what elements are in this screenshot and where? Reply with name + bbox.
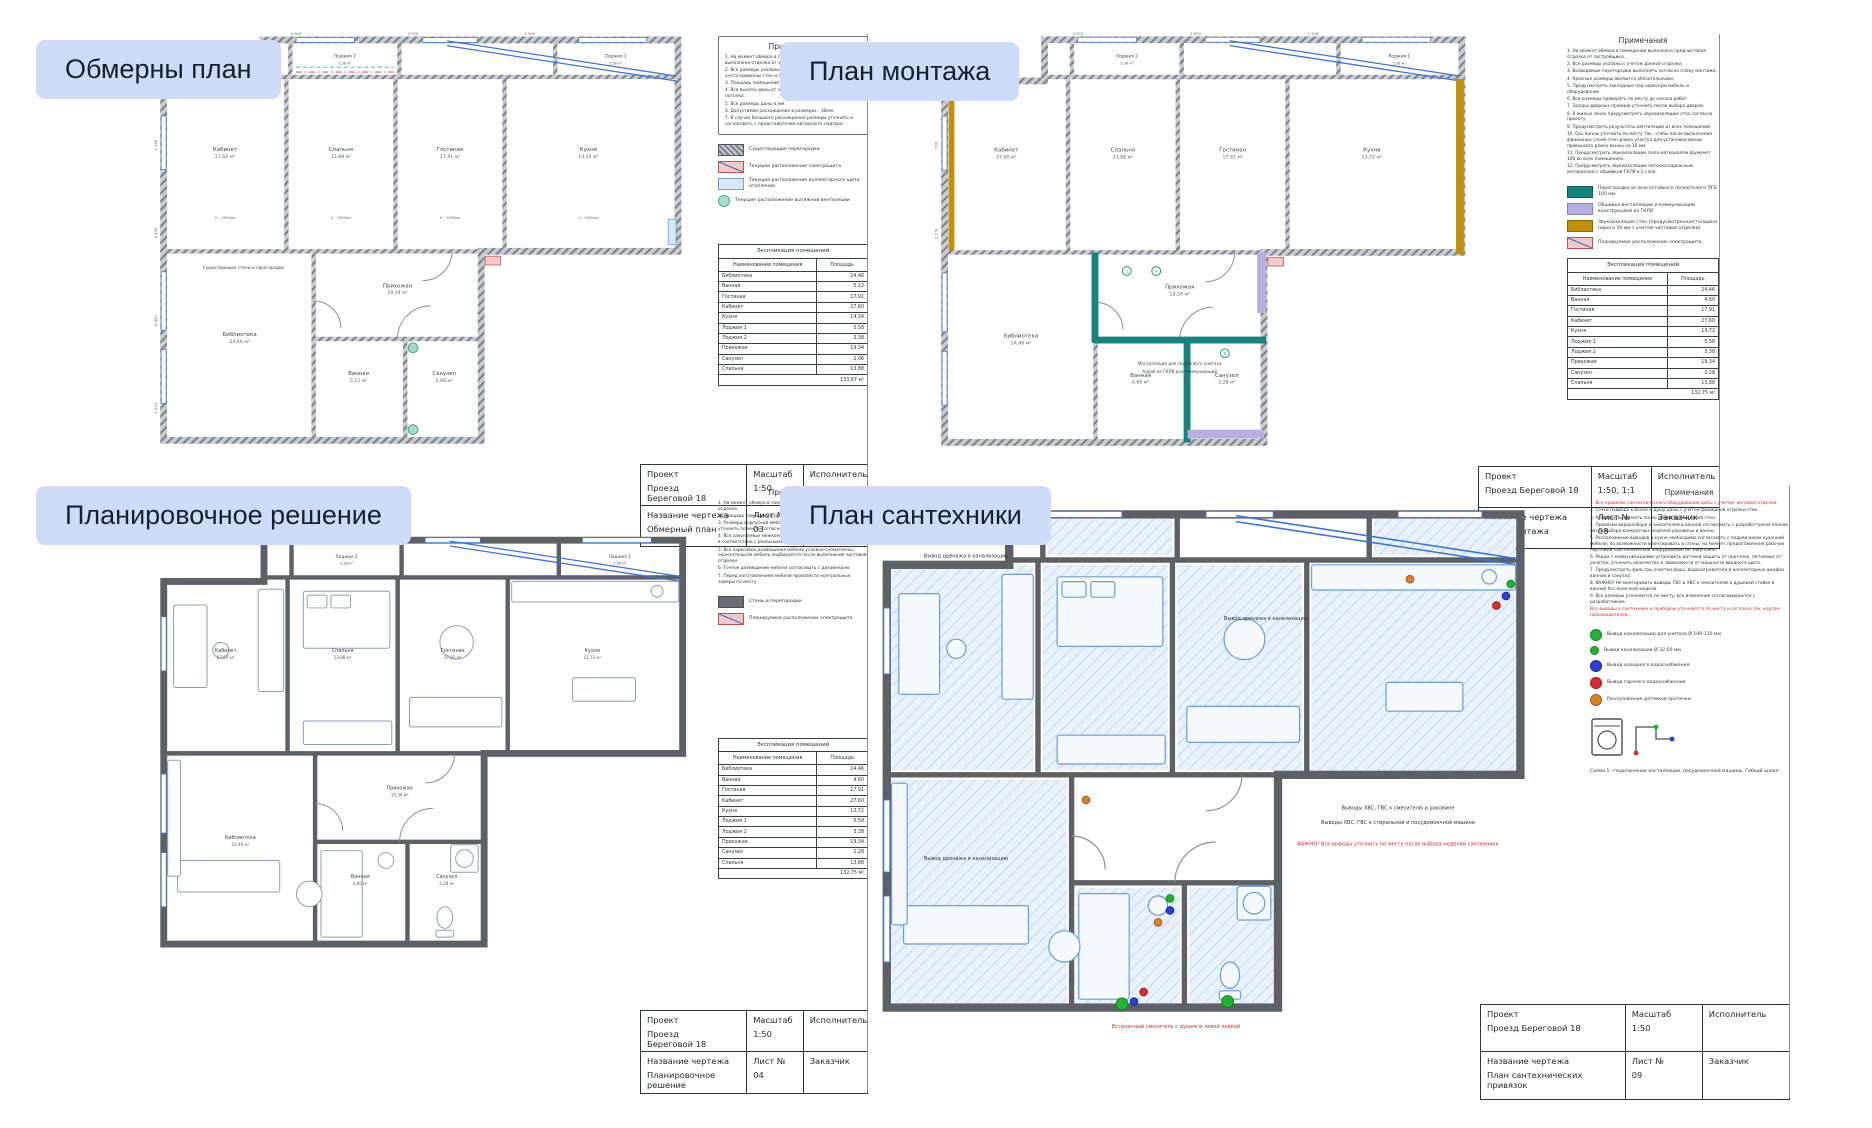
window bbox=[942, 351, 947, 405]
plan-annotation: Инсталляция для подвесного унитаза bbox=[1138, 361, 1221, 366]
room-name: Лоджия 1 bbox=[1388, 53, 1410, 59]
legend-swatch-solid bbox=[1567, 220, 1593, 232]
room-area: 24,46 м² bbox=[231, 842, 249, 847]
sheet-montage-plan: 246Кабинет27,60 м²Спальня13,88 м²Гостина… bbox=[870, 28, 1720, 549]
room-area-cell: 13,72 bbox=[1667, 327, 1718, 337]
room-name-cell: Прихожая bbox=[1568, 358, 1668, 368]
room-area: 3,38 м² bbox=[340, 562, 354, 566]
room-name-cell: Лоджия 2 bbox=[1568, 347, 1668, 357]
room-name: Спальня bbox=[332, 648, 354, 654]
sheet-label-measurement: Обмерны план bbox=[36, 40, 281, 99]
legend-label: Текущее расположение вытяжной вентиляции bbox=[735, 198, 850, 204]
room-name: Гостиная bbox=[437, 147, 464, 153]
door-arc bbox=[1206, 775, 1242, 811]
sewer-outlet bbox=[1222, 996, 1234, 1008]
title-block-label: Проект bbox=[647, 469, 740, 479]
plan-annotation: Вывод дренажа в канализацию bbox=[924, 554, 1008, 560]
room-area: 13,88 м² bbox=[331, 154, 351, 160]
dimension: 1 510 bbox=[154, 402, 158, 413]
furniture-round bbox=[947, 639, 966, 658]
legend-swatch-ehatch bbox=[1567, 237, 1593, 249]
cold-water-outlet bbox=[1502, 592, 1510, 600]
plan-annotation: Короб из ГКЛВ для коммуникаций bbox=[1142, 369, 1217, 374]
room-name: Лоджия 1 bbox=[605, 53, 627, 59]
height-note: H - 2985мм bbox=[331, 216, 352, 220]
note-line: 11. Предусмотреть звукоизоляцию пола мат… bbox=[1567, 151, 1719, 163]
room-name-cell: Гостиная bbox=[719, 785, 817, 795]
room-name: Гостиная bbox=[441, 648, 465, 654]
dimension: 1 226 bbox=[1308, 32, 1319, 36]
glazing-line bbox=[447, 41, 676, 76]
title-block-value: Проезд Береговой 18 bbox=[1487, 1023, 1619, 1033]
title-block-label: Лист № bbox=[753, 1056, 797, 1066]
col-room-name: Наименование помещения bbox=[1568, 272, 1668, 285]
title-block-label: Исполнитель bbox=[810, 469, 861, 479]
window bbox=[884, 896, 890, 962]
room-name-cell: Кухня bbox=[719, 806, 817, 816]
furniture bbox=[168, 760, 181, 876]
title-block-cell: ПроектПроезд Береговой 18 bbox=[641, 1011, 747, 1052]
table-row: Кабинет27,60 bbox=[719, 796, 868, 806]
legend-swatch-ehatch bbox=[718, 161, 744, 173]
note-line: 10. Ось ванны уточнить по месту так, что… bbox=[1567, 132, 1719, 149]
note-line: 5. Все зарисовки размещения мебели услов… bbox=[718, 548, 868, 565]
room-name: Санузел bbox=[432, 371, 456, 377]
legend-label: Текущее расположение коллекторного щита … bbox=[749, 178, 868, 190]
room-area-cell: 5,58 bbox=[1667, 337, 1718, 347]
table-title-row: Экспликация помещений bbox=[1568, 259, 1719, 272]
legend-item: Стены и перегородки bbox=[718, 596, 868, 608]
title-block-cell: Лист №09 bbox=[1626, 1052, 1703, 1099]
room-name-cell: Санузел bbox=[1568, 368, 1668, 378]
height-note: H - 2985мм bbox=[440, 216, 461, 220]
room-name: Библиотека bbox=[223, 332, 257, 338]
room-area: 3,38 м² bbox=[1120, 61, 1134, 65]
note-line: Все выводы к сантехнике и приборам уточн… bbox=[1590, 607, 1788, 619]
legend-swatch-solid bbox=[718, 178, 744, 190]
room-name-cell: Гостиная bbox=[1568, 306, 1668, 316]
col-area: Площадь bbox=[817, 752, 868, 765]
electro-panel bbox=[1268, 257, 1284, 266]
table-row: Спальня13,88 bbox=[719, 858, 868, 868]
table-header-row: Наименование помещенияПлощадь bbox=[1568, 272, 1719, 285]
room-name: Прихожая bbox=[1165, 285, 1194, 291]
room-area: 19,34 м² bbox=[391, 793, 409, 798]
dimension: 5 915 bbox=[291, 32, 302, 36]
room-area: 5,58 м² bbox=[613, 562, 627, 566]
room-area-cell: 13,88 bbox=[1667, 378, 1718, 388]
table-row: Лоджия 23,38 bbox=[719, 333, 868, 343]
title-block-cell: Исполнитель bbox=[1703, 1005, 1789, 1052]
title-block-label: Масштаб bbox=[753, 469, 797, 479]
room-name: Прихожая bbox=[386, 786, 412, 792]
note-line: 9. Все размеры уточняются по месту; все … bbox=[1590, 594, 1788, 606]
title-block-label: Название чертежа bbox=[1487, 1056, 1619, 1066]
svg-text:2: 2 bbox=[1126, 269, 1128, 273]
room-name: Лоджия 1 bbox=[609, 554, 632, 560]
room-name-cell: Лоджия 2 bbox=[719, 827, 817, 837]
room-name-cell: Библиотека bbox=[1568, 285, 1668, 295]
room-area: 4,60 м² bbox=[353, 881, 369, 886]
legend-item: Текущее расположение электрощита bbox=[718, 161, 868, 173]
room-name: Кухня bbox=[580, 147, 597, 153]
plan-annotation: Существующие стены и перегородки bbox=[203, 265, 284, 270]
plan-annotation: Выводы ХВС, ГВС к смесителю и раковине bbox=[1341, 806, 1454, 812]
title-block-label: Масштаб bbox=[753, 1015, 797, 1025]
glazing-line bbox=[1230, 41, 1460, 76]
sewer-outlet-small bbox=[1166, 895, 1174, 903]
legend: Вывод канализации для унитаза Ø 100-110 … bbox=[1590, 629, 1788, 706]
room-area-cell: 3,38 bbox=[1667, 347, 1718, 357]
furniture bbox=[1187, 706, 1300, 742]
title-block-value: 09 bbox=[1632, 1070, 1696, 1080]
furniture-round bbox=[456, 850, 474, 868]
gklv-box bbox=[1257, 252, 1266, 313]
title-block: ПроектПроезд Береговой 18Масштаб1:50Испо… bbox=[1480, 1004, 1790, 1100]
plan-annotation: Выводы ХВС, ГВС к стиральной и посудомое… bbox=[1321, 819, 1475, 826]
furniture bbox=[1079, 894, 1129, 1000]
room-name-cell: Кабинет bbox=[719, 302, 817, 312]
note-line: 2. Точки подвода к ванне и душу даны с у… bbox=[1590, 508, 1788, 514]
sheet-layout-plan: Кабинет27,60 м²Спальня13,88 м²Гостиная17… bbox=[150, 480, 868, 1096]
furniture-round bbox=[1049, 931, 1080, 962]
room-area: 5,12 м² bbox=[350, 378, 367, 384]
notes-panel: Примечания1. На момент обмера в помещени… bbox=[1567, 36, 1719, 177]
title-block-cell: Название чертежаПлан сантехнических прив… bbox=[1481, 1052, 1626, 1099]
legend-label: Звукоизоляция стен (предусмотренная толщ… bbox=[1598, 220, 1719, 232]
title-block-value: Планировочное решение bbox=[647, 1070, 740, 1090]
new-partition bbox=[1092, 252, 1099, 342]
furniture-round bbox=[1224, 619, 1265, 660]
room-area: 5,58 м² bbox=[609, 61, 623, 65]
legend: Существующие перегородкиТекущее располож… bbox=[718, 144, 868, 207]
table-row: Санузел2,06 bbox=[719, 354, 868, 364]
table-row: Спальня13,88 bbox=[719, 365, 868, 375]
legend-swatch-hatch bbox=[718, 144, 744, 156]
room-area: 27,60 м² bbox=[215, 154, 235, 160]
cold-water-outlet bbox=[1130, 998, 1138, 1006]
legend-item: Вывод холодного водоснабжения bbox=[1590, 660, 1788, 672]
total-area-cell: 133,67 м² bbox=[719, 375, 868, 385]
sheet-plumbing-plan: Вывод дренажа в канализациюВывод дренажа… bbox=[868, 480, 1790, 1102]
note-line: 4. Привязки водоразбора к смесителям в в… bbox=[1590, 523, 1788, 535]
legend-label: Вывод канализации Ø 32-50 мм bbox=[1604, 648, 1681, 654]
door-arc bbox=[423, 251, 452, 280]
furniture bbox=[321, 851, 362, 937]
room-area-cell: 19,34 bbox=[817, 344, 868, 354]
room-name: Кухня bbox=[1363, 147, 1380, 153]
room-area-cell: 17,91 bbox=[1667, 306, 1718, 316]
room-area-cell: 4,60 bbox=[817, 775, 868, 785]
sewer-outlet bbox=[1116, 998, 1128, 1010]
room-name: Кухня bbox=[585, 648, 600, 654]
room-name: Гостиная bbox=[1219, 147, 1246, 153]
legend-label: Обшивка инсталляции и коммуникаций конст… bbox=[1598, 203, 1719, 215]
room-name: Лоджия 2 bbox=[1116, 53, 1138, 59]
legend-item: Звукоизоляция стен (предусмотренная толщ… bbox=[1567, 220, 1719, 232]
room-area: 13,88 м² bbox=[1113, 154, 1133, 160]
room-name: Ванная bbox=[348, 371, 369, 377]
legend-label: Планируемое расположение электрощита bbox=[749, 616, 853, 622]
note-line: 8. ВАЖНО! Не монтировать выводы ГВС и ХВ… bbox=[1590, 581, 1788, 593]
note-line: 1. На момент обмера в помещении выполнен… bbox=[1567, 49, 1719, 61]
room-area: 24,46 м² bbox=[230, 339, 250, 345]
legend-label: Стены и перегородки bbox=[749, 599, 802, 605]
window bbox=[296, 38, 354, 43]
table-row: Лоджия 23,38 bbox=[1568, 347, 1719, 357]
room-name: Лоджия 2 bbox=[334, 53, 356, 59]
table-title-row: Экспликация помещений bbox=[719, 738, 868, 751]
room-name-cell: Прихожая bbox=[719, 837, 817, 847]
window bbox=[1078, 37, 1137, 42]
legend-label: Планируемое расположение электрощита bbox=[1598, 240, 1702, 246]
door-arc bbox=[1175, 842, 1216, 883]
legend-swatch-circle bbox=[1590, 694, 1602, 706]
appliance-icons bbox=[1590, 717, 1788, 757]
room-name: Ванная bbox=[351, 874, 370, 880]
room-area-cell: 17,91 bbox=[817, 292, 868, 302]
table-row: Лоджия 15,58 bbox=[1568, 337, 1719, 347]
title-block-label: Заказчик bbox=[1709, 1056, 1783, 1066]
door-arc bbox=[315, 804, 343, 832]
room-area-cell: 13,88 bbox=[817, 365, 868, 375]
legend-item: Планируемое расположение электрощита bbox=[718, 613, 868, 625]
furniture bbox=[178, 861, 280, 892]
table-title: Экспликация помещений bbox=[1568, 259, 1719, 272]
legend-item: Вывод канализации для унитаза Ø 100-110 … bbox=[1590, 629, 1788, 641]
window bbox=[942, 116, 947, 170]
table-row: Ванная4,60 bbox=[719, 775, 868, 785]
table-total-row: 132,75 м² bbox=[1568, 389, 1719, 399]
vent-circle bbox=[408, 343, 418, 353]
hot-water-outlet bbox=[1140, 988, 1148, 996]
window bbox=[1050, 511, 1122, 517]
room-area-cell: 5,58 bbox=[817, 323, 868, 333]
hot-water-outlet bbox=[1493, 602, 1501, 610]
furniture bbox=[1002, 574, 1033, 699]
window bbox=[942, 273, 947, 332]
room-name: Санузел bbox=[436, 874, 457, 880]
room-area: 13,88 м² bbox=[334, 655, 352, 660]
room-area-cell: 27,60 bbox=[817, 796, 868, 806]
dimension: 700 bbox=[935, 141, 939, 149]
furniture bbox=[307, 595, 327, 608]
title-block-cell: Масштаб1:50 bbox=[747, 1011, 804, 1052]
room-area: 24,46 м² bbox=[1011, 340, 1031, 346]
dimension: 6 450 bbox=[154, 315, 158, 326]
room-area: 13,72 м² bbox=[583, 655, 601, 660]
note-line: 4. Красные размеры являются обязательным… bbox=[1567, 77, 1719, 83]
legend-label: Расположение датчиков протечки bbox=[1607, 697, 1691, 703]
notes-panel: Примечания1. Все привязки сантехническог… bbox=[1590, 488, 1788, 620]
room-name: Кабинет bbox=[213, 147, 238, 153]
table-header-row: Наименование помещенияПлощадь bbox=[719, 752, 868, 765]
door-arc bbox=[314, 301, 341, 328]
legend-label: Вывод холодного водоснабжения bbox=[1607, 663, 1689, 669]
furniture bbox=[904, 906, 1029, 944]
room-name-cell: Кухня bbox=[719, 313, 817, 323]
table-row: Библиотека24,46 bbox=[719, 271, 868, 281]
furniture bbox=[174, 605, 207, 688]
plan-annotation: Вывод дренажа в канализацию bbox=[924, 856, 1008, 862]
room-area: 14,34 м² bbox=[578, 154, 598, 160]
furniture bbox=[1091, 582, 1115, 598]
legend-item: Перегородка из влагостойкого полнотелого… bbox=[1567, 186, 1719, 198]
room-table: Экспликация помещенийНаименование помеще… bbox=[718, 244, 868, 386]
room-area-cell: 14,34 bbox=[817, 313, 868, 323]
room-area-cell: 3,38 bbox=[817, 333, 868, 343]
table-row: Кабинет27,60 bbox=[719, 302, 868, 312]
furniture bbox=[899, 594, 940, 695]
furniture bbox=[409, 697, 501, 726]
room-area-cell: 5,12 bbox=[817, 282, 868, 292]
outer-walls bbox=[945, 40, 1462, 443]
room-name: Спальня bbox=[329, 147, 353, 153]
furniture bbox=[892, 783, 908, 925]
col-room-name: Наименование помещения bbox=[719, 752, 817, 765]
room-area: 17,91 м² bbox=[1222, 154, 1242, 160]
room-area-cell: 13,88 bbox=[817, 858, 868, 868]
legend-swatch-circle bbox=[1590, 677, 1602, 689]
drawing-board: Кабинет27,60 м²Спальня13,88 м²Гостиная17… bbox=[0, 0, 1872, 1128]
plan-annotation: Встроенный смеситель с душем и левой лей… bbox=[1112, 1023, 1240, 1030]
note-line: 7. В случае большого расхождения размеры… bbox=[725, 116, 861, 128]
furniture-round bbox=[1482, 570, 1496, 584]
piping-scheme-icon bbox=[1632, 717, 1676, 757]
note-line: 6. Допустимое расхождение в размерах - 3… bbox=[725, 109, 861, 115]
note-line: 3. Разводку выполнять после штукатурных … bbox=[1590, 516, 1788, 522]
table-row: Спальня13,88 bbox=[1568, 378, 1719, 388]
dimension: 2 970 bbox=[408, 32, 419, 36]
room-name-cell: Лоджия 2 bbox=[719, 333, 817, 343]
title-block-cell: Исполнитель bbox=[804, 1011, 867, 1052]
room-area-cell: 24,46 bbox=[817, 271, 868, 281]
collector-panel bbox=[668, 219, 676, 244]
sound-insulation bbox=[1456, 79, 1464, 254]
table-row: Библиотека24,46 bbox=[719, 765, 868, 775]
window bbox=[1362, 37, 1431, 42]
table-row: Лоджия 23,38 bbox=[719, 827, 868, 837]
sheet-label-plumbing: План сантехники bbox=[780, 486, 1051, 545]
title-block-label: Лист № bbox=[1632, 1056, 1696, 1066]
door-arc bbox=[1095, 302, 1122, 329]
legend-item: Обшивка инсталляции и коммуникаций конст… bbox=[1567, 203, 1719, 215]
furniture-round bbox=[1148, 896, 1167, 915]
notes-body: 1. На момент обмера в помещении выполнен… bbox=[1567, 49, 1719, 176]
note-line: 6. Рядом с коммуникациями установить дат… bbox=[1590, 555, 1788, 567]
room-area: 2,28 м² bbox=[439, 881, 455, 886]
table-row: Гостиная17,91 bbox=[719, 785, 868, 795]
room-name-cell: Кухня bbox=[1568, 327, 1668, 337]
room-name-cell: Библиотека bbox=[719, 271, 817, 281]
legend-label: Существующие перегородки bbox=[749, 147, 820, 153]
door-arc bbox=[1072, 836, 1106, 870]
gklv-box bbox=[1188, 430, 1264, 439]
room-name-cell: Спальня bbox=[719, 858, 817, 868]
furniture bbox=[303, 721, 391, 745]
total-area-cell: 132,75 м² bbox=[719, 868, 868, 878]
table-row: Лоджия 15,58 bbox=[719, 323, 868, 333]
furniture bbox=[1386, 682, 1463, 711]
room-name-cell: Кабинет bbox=[719, 796, 817, 806]
room-name-cell: Ванная bbox=[719, 282, 817, 292]
window bbox=[582, 538, 651, 543]
title-block-label: Исполнитель bbox=[1709, 1009, 1783, 1019]
window bbox=[161, 774, 166, 833]
notes-title: Примечания bbox=[1567, 36, 1719, 45]
title-block-label: Заказчик bbox=[810, 1056, 861, 1066]
title-block-cell: Заказчик bbox=[1703, 1052, 1789, 1099]
col-room-name: Наименование помещения bbox=[719, 258, 817, 271]
legend: Перегородка из влагостойкого полнотелого… bbox=[1567, 186, 1719, 249]
outer-walls bbox=[164, 40, 678, 440]
room-name: Библиотека bbox=[225, 835, 256, 841]
sewer-outlet-small bbox=[1507, 580, 1515, 588]
sheet-label-layout: Планировочное решение bbox=[36, 486, 411, 545]
table-title-row: Экспликация помещений bbox=[719, 245, 868, 258]
room-area: 17,91 м² bbox=[444, 655, 462, 660]
room-name-cell: Ванная bbox=[1568, 295, 1668, 305]
new-partition bbox=[1094, 337, 1266, 344]
table-row: Кухня13,72 bbox=[1568, 327, 1719, 337]
title-block-label: Проект bbox=[1487, 1009, 1619, 1019]
table-row: Санузел2,28 bbox=[1568, 368, 1719, 378]
leak-sensor bbox=[1406, 575, 1414, 583]
dimension: 1 226 bbox=[154, 139, 158, 150]
side-panel: Примечания1. Все привязки сантехническог… bbox=[1590, 488, 1788, 775]
window bbox=[884, 800, 890, 872]
note-line: 8. В жилых зонах предусмотреть звукоизол… bbox=[1567, 112, 1719, 124]
table-row: Ванная4,60 bbox=[1568, 295, 1719, 305]
room-name-cell: Лоджия 1 bbox=[719, 323, 817, 333]
room-name-cell: Санузел bbox=[719, 354, 817, 364]
note-line: 5. Предусмотреть закладные под навесную … bbox=[1567, 84, 1719, 96]
room-name-cell: Лоджия 1 bbox=[719, 817, 817, 827]
leak-sensor bbox=[1082, 796, 1090, 804]
note-line: 5. Расположение выводов в кухне необходи… bbox=[1590, 536, 1788, 553]
window bbox=[161, 350, 166, 404]
notes-body: 1. Все привязки сантехнического оборудов… bbox=[1590, 501, 1788, 619]
window bbox=[579, 38, 647, 43]
note-line: 6. Все размеры проверять по месту до нач… bbox=[1567, 97, 1719, 103]
total-area-cell: 132,75 м² bbox=[1568, 389, 1719, 399]
legend-swatch-ehatch bbox=[718, 613, 744, 625]
room-area-cell: 19,34 bbox=[817, 837, 868, 847]
legend-swatch-solid bbox=[1567, 186, 1593, 198]
room-area: 19,34 м² bbox=[1170, 291, 1190, 297]
window bbox=[161, 272, 166, 330]
room-name: Кабинет bbox=[215, 648, 237, 654]
room-name-cell: Спальня bbox=[719, 365, 817, 375]
room-name: Лоджия 2 bbox=[335, 554, 358, 560]
dimension: 2 170 bbox=[935, 228, 939, 239]
col-area: Площадь bbox=[817, 258, 868, 271]
furniture-round bbox=[378, 853, 394, 869]
sheet-frame-line bbox=[1789, 486, 1790, 1098]
legend-label: Текущее расположение электрощита bbox=[749, 164, 841, 170]
room-area-cell: 27,60 bbox=[1667, 316, 1718, 326]
door-arc bbox=[1180, 307, 1213, 340]
window bbox=[161, 116, 166, 170]
furniture bbox=[258, 589, 284, 691]
table-row: Кабинет27,60 bbox=[1568, 316, 1719, 326]
dimension: 2 970 bbox=[1190, 32, 1201, 36]
room-name-cell: Прихожая bbox=[719, 344, 817, 354]
dimension: 2 435 bbox=[154, 227, 158, 238]
legend-item: Текущее расположение коллекторного щита … bbox=[718, 178, 868, 190]
room-area-cell: 17,91 bbox=[817, 785, 868, 795]
room-area-cell: 2,06 bbox=[817, 354, 868, 364]
